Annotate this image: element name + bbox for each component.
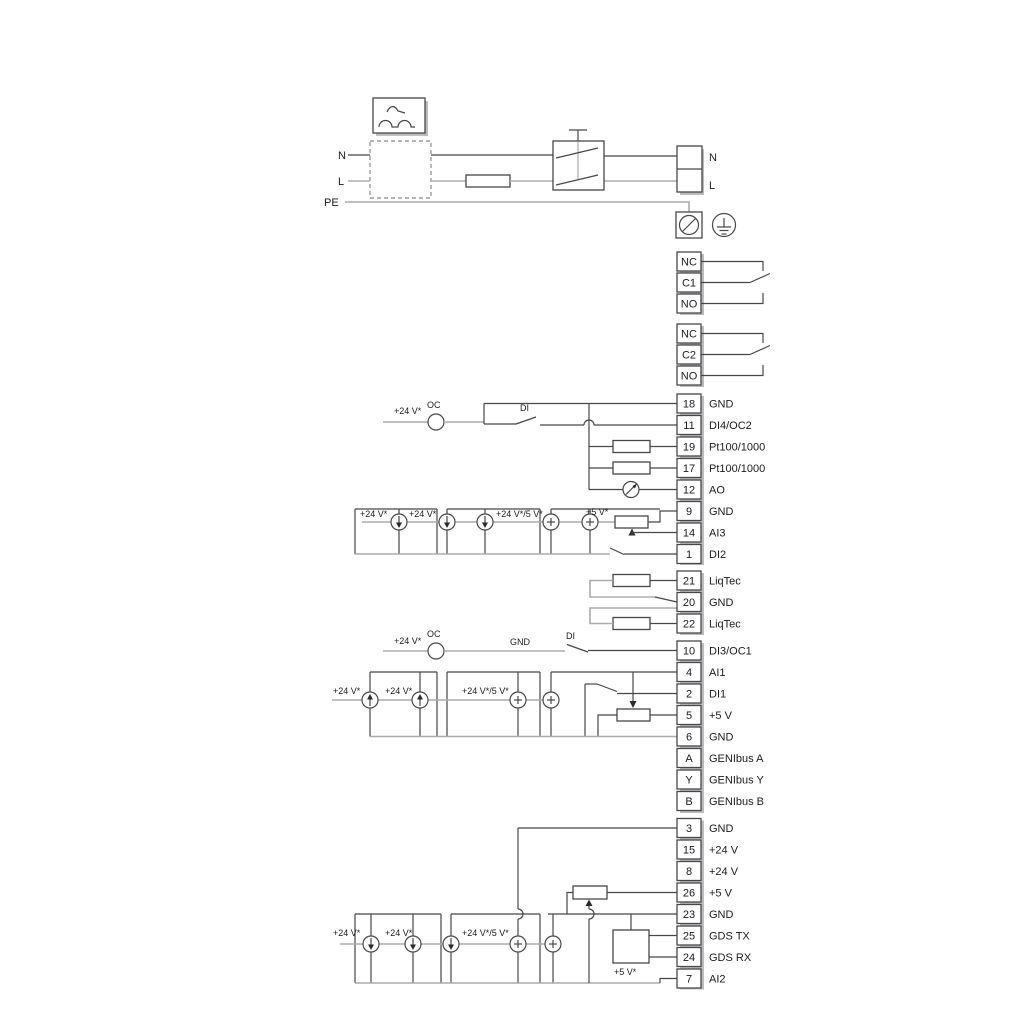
di3-oc1-wiring: +24 V* OC GND DI (383, 629, 677, 659)
wiper-arrow-icon (630, 701, 637, 708)
label-l-right: L (709, 180, 715, 192)
di2-switch-icon (610, 548, 624, 555)
svg-text:5: 5 (686, 710, 692, 722)
resistor-icon (613, 441, 650, 453)
svg-text:20: 20 (683, 597, 695, 609)
svg-text:GDS TX: GDS TX (709, 931, 750, 943)
terminal-row: 1DI2 (677, 545, 726, 564)
svg-text:Pt100/1000: Pt100/1000 (709, 463, 765, 475)
label-gnd: GND (510, 637, 531, 647)
terminal-row: BGENIbus B (677, 792, 764, 811)
pe-screw-terminal-icon (676, 212, 702, 238)
open-collector-icon (428, 643, 444, 659)
relay2-contact-icon (750, 346, 770, 355)
svg-text:14: 14 (683, 528, 695, 540)
svg-text:DI4/OC2: DI4/OC2 (709, 420, 752, 432)
svg-text:LiqTec: LiqTec (709, 619, 741, 631)
terminal-group-2: 21LiqTec 20GND 22LiqTec (677, 571, 741, 635)
svg-text:4: 4 (686, 667, 692, 679)
terminal-row: AGENIbus A (677, 749, 764, 768)
label-24v-5v: +24 V*/5 V* (462, 686, 509, 696)
svg-text:23: 23 (683, 909, 695, 921)
ai2-gds-wiring: +24 V* +24 V* +24 V*/5 V* +5 V* (333, 828, 677, 983)
svg-text:GND: GND (709, 506, 734, 518)
svg-text:GENIbus Y: GENIbus Y (709, 775, 764, 787)
label-24v: +24 V* (409, 509, 437, 519)
svg-text:21: 21 (683, 576, 695, 588)
terminal-row: 3GND (677, 819, 734, 838)
svg-text:GND: GND (709, 909, 734, 921)
svg-text:+24 V: +24 V (709, 866, 739, 878)
terminal-row: 10DI3/OC1 (677, 641, 752, 660)
svg-text:B: B (685, 796, 692, 808)
terminal-row: 24GDS RX (677, 948, 752, 967)
label-pe: PE (324, 197, 339, 209)
open-collector-icon (428, 414, 444, 430)
terminal-row: 22LiqTec (677, 614, 741, 633)
liqtec-wiring (590, 575, 677, 630)
terminal-row: 20GND (677, 593, 734, 612)
svg-text:3: 3 (686, 823, 692, 835)
svg-text:GDS RX: GDS RX (709, 952, 752, 964)
potentiometer-icon (617, 709, 650, 721)
wiring-diagram-page: { "power": { "n_left": "N", "l_left": "L… (0, 0, 1024, 1024)
wiper-arrow-icon (586, 900, 593, 907)
ai1-di1-wiring: +24 V* +24 V* +24 V*/5 V* (332, 672, 677, 737)
label-oc: OC (427, 629, 441, 639)
svg-text:+24 V: +24 V (709, 845, 739, 857)
label-5v: +5 V* (586, 507, 609, 517)
meter-icon (623, 482, 639, 498)
svg-text:DI3/OC1: DI3/OC1 (709, 646, 752, 658)
svg-text:GND: GND (709, 597, 734, 609)
gds-module-icon (613, 930, 649, 963)
label-24v-5v: +24 V*/5 V* (462, 928, 509, 938)
resistor-icon (613, 575, 650, 587)
terminal-row: 7AI2 (677, 969, 726, 988)
svg-text:12: 12 (683, 485, 695, 497)
svg-text:AI1: AI1 (709, 667, 726, 679)
svg-text:17: 17 (683, 463, 695, 475)
label-24v: +24 V* (333, 928, 361, 938)
svg-text:6: 6 (686, 732, 692, 744)
label-24v-5v: +24 V*/5 V* (496, 509, 543, 519)
relay2-no: NO (681, 371, 698, 383)
earth-icon (713, 214, 736, 237)
label-di: DI (520, 403, 529, 413)
relay-2: NC C2 NO (677, 324, 770, 387)
di-switch-icon (516, 417, 536, 424)
label-l-left: L (338, 176, 344, 188)
terminal-row: 18GND (677, 394, 734, 413)
resistor-icon (613, 618, 650, 630)
relay1-c1: C1 (682, 278, 696, 290)
svg-text:26: 26 (683, 888, 695, 900)
terminal-row: 5+5 V (677, 706, 733, 725)
label-di: DI (566, 631, 575, 641)
fuse-icon (466, 175, 510, 187)
waveform-icon (373, 98, 428, 136)
svg-text:18: 18 (683, 399, 695, 411)
label-24v: +24 V* (333, 686, 361, 696)
svg-text:2: 2 (686, 689, 692, 701)
potentiometer-icon (615, 516, 648, 528)
svg-text:7: 7 (686, 974, 692, 986)
relay1-nc: NC (681, 257, 697, 269)
svg-text:GENIbus B: GENIbus B (709, 796, 764, 808)
terminal-group-4: 3GND 15+24 V 8+24 V 26+5 V 23GND 25GDS T… (677, 819, 752, 990)
svg-text:8: 8 (686, 866, 692, 878)
relay2-c2: C2 (682, 350, 696, 362)
svg-text:+5 V: +5 V (709, 710, 733, 722)
terminal-row: 12AO (677, 480, 725, 499)
label-n-right: N (709, 152, 717, 164)
relay-1: NC C1 NO (677, 252, 770, 315)
svg-text:A: A (685, 753, 693, 765)
terminal-row: 25GDS TX (677, 926, 750, 945)
svg-text:1: 1 (686, 549, 692, 561)
svg-text:25: 25 (683, 931, 695, 943)
diagram-canvas: N L PE N L NC C1 NO NC C2 NO (0, 0, 1024, 1024)
label-24v: +24 V* (385, 928, 413, 938)
terminal-row: 2DI1 (677, 684, 726, 703)
svg-text:DI2: DI2 (709, 549, 726, 561)
di-switch-icon (567, 645, 588, 653)
di4-oc2-wiring: +24 V* OC DI (383, 400, 677, 498)
svg-text:24: 24 (683, 952, 695, 964)
svg-text:15: 15 (683, 845, 695, 857)
terminal-row: 14AI3 (677, 523, 726, 542)
terminal-row: 4AI1 (677, 663, 726, 682)
mains-switch-icon (553, 130, 604, 190)
svg-text:GND: GND (709, 823, 734, 835)
terminal-row: 21LiqTec (677, 571, 741, 590)
label-5v: +5 V* (614, 967, 637, 977)
di1-switch-icon (597, 684, 617, 692)
potentiometer-icon (573, 886, 607, 899)
label-oc: OC (427, 400, 441, 410)
svg-text:GENIbus A: GENIbus A (709, 753, 764, 765)
terminal-row: 17Pt100/1000 (677, 459, 765, 478)
terminal-row: 26+5 V (677, 883, 733, 902)
svg-text:AI2: AI2 (709, 974, 726, 986)
svg-text:22: 22 (683, 619, 695, 631)
terminal-row: 19Pt100/1000 (677, 437, 765, 456)
svg-text:9: 9 (686, 506, 692, 518)
svg-text:AI3: AI3 (709, 528, 726, 540)
label-24v: +24 V* (394, 636, 422, 646)
mains-terminal-block (677, 146, 704, 195)
terminal-group-3: 10DI3/OC1 4AI1 2DI1 5+5 V 6GND AGENIbus … (677, 641, 764, 813)
svg-text:DI1: DI1 (709, 689, 726, 701)
terminal-group-1: 18GND 11DI4/OC2 19Pt100/1000 17Pt100/100… (677, 394, 765, 565)
terminal-row: 11DI4/OC2 (677, 416, 752, 435)
svg-text:10: 10 (683, 646, 695, 658)
svg-text:11: 11 (683, 420, 694, 432)
svg-text:GND: GND (709, 732, 734, 744)
terminal-row: 15+24 V (677, 840, 739, 859)
label-24v: +24 V* (360, 509, 388, 519)
relay1-no: NO (681, 299, 698, 311)
svg-text:Pt100/1000: Pt100/1000 (709, 442, 765, 454)
relay2-nc: NC (681, 329, 697, 341)
ai3-di2-wiring: +24 V* +24 V* +24 V*/5 V* +5 V* (355, 507, 677, 555)
label-n-left: N (338, 150, 346, 162)
svg-text:19: 19 (683, 442, 695, 454)
svg-text:AO: AO (709, 485, 725, 497)
svg-text:GND: GND (709, 399, 734, 411)
svg-text:LiqTec: LiqTec (709, 576, 741, 588)
terminal-row: 6GND (677, 727, 734, 746)
svg-text:+5 V: +5 V (709, 888, 733, 900)
terminal-row: 8+24 V (677, 862, 739, 881)
power-section: N L PE N L (324, 98, 736, 238)
relay1-contact-icon (750, 274, 770, 283)
filter-box (370, 141, 431, 198)
terminal-row: YGENIbus Y (677, 770, 764, 789)
terminal-row: 23GND (677, 905, 734, 924)
resistor-icon (613, 462, 650, 474)
label-24v: +24 V* (394, 406, 422, 416)
label-24v: +24 V* (385, 686, 413, 696)
svg-text:Y: Y (685, 775, 693, 787)
terminal-row: 9GND (677, 502, 734, 521)
